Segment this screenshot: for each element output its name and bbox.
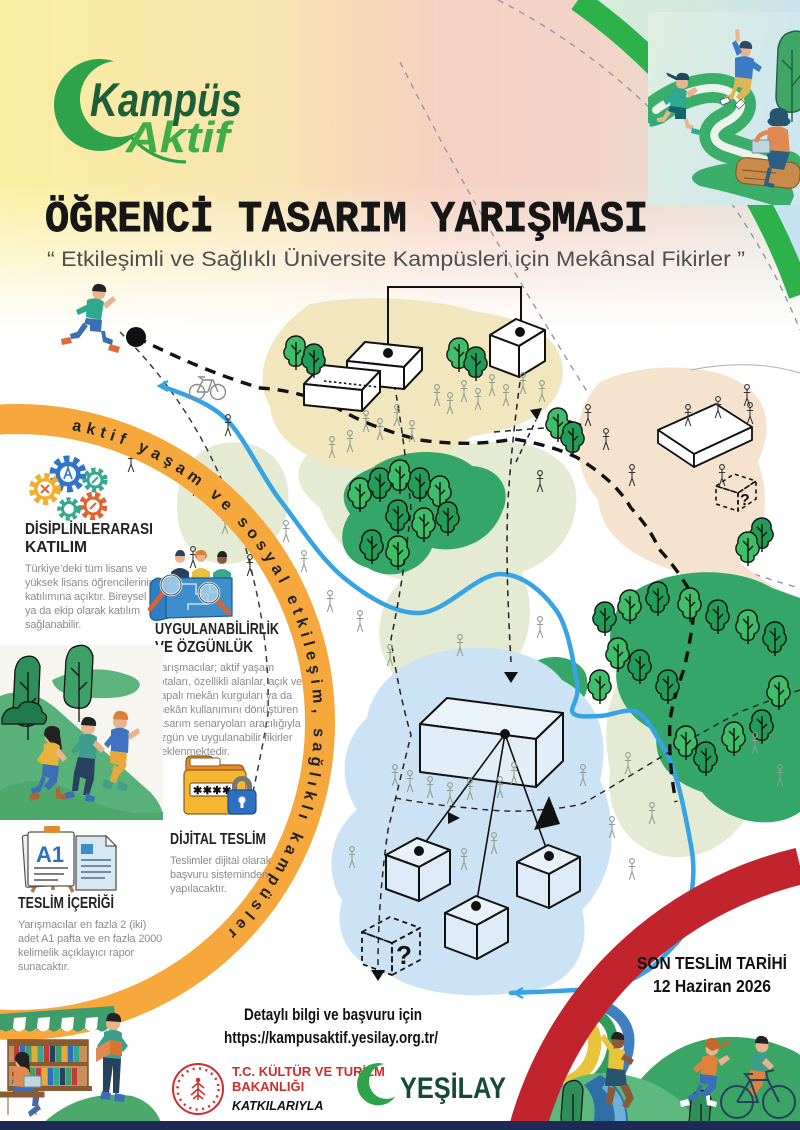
svg-text:Türkiye’deki tüm lisans ve: Türkiye’deki tüm lisans ve [25, 563, 147, 575]
svg-text:Yarışmacılar en fazla 2 (iki): Yarışmacılar en fazla 2 (iki) [18, 919, 146, 931]
svg-text:YEŞİLAY: YEŞİLAY [400, 1072, 506, 1105]
svg-text:başvuru sisteminden: başvuru sisteminden [170, 869, 268, 881]
svg-text:Teslimler dijital olarak: Teslimler dijital olarak [170, 855, 272, 867]
svg-text:rotaları, özellikli alanlar, a: rotaları, özellikli alanlar, açık ve [155, 676, 302, 688]
svg-text:?: ? [396, 940, 412, 970]
svg-text:mekân kullanımını dönüştüren: mekân kullanımını dönüştüren [155, 704, 298, 716]
svg-text:DİJİTAL TESLİM: DİJİTAL TESLİM [170, 831, 266, 848]
svg-text:Aktif: Aktif [125, 113, 235, 162]
svg-text:KATKILARIYLA: KATKILARIYLA [232, 1099, 323, 1113]
svg-text:katılımına açıktır. Bireysel: katılımına açıktır. Bireysel [25, 591, 146, 603]
svg-text:sunacaktır.: sunacaktır. [18, 961, 70, 973]
svg-text:kelimelik açıklayıcı rapor: kelimelik açıklayıcı rapor [18, 947, 134, 959]
svg-text:VE ÖZGÜNLÜK: VE ÖZGÜNLÜK [155, 639, 254, 656]
svg-text:özgün ve uygulanabilir fikirle: özgün ve uygulanabilir fikirler [155, 732, 293, 744]
svg-text:SON TESLİM TARİHİ: SON TESLİM TARİHİ [637, 953, 787, 973]
svg-text:12 Haziran 2026: 12 Haziran 2026 [653, 976, 771, 996]
svg-text:yüksek lisans öğrencilerinin: yüksek lisans öğrencilerinin [25, 577, 155, 589]
svg-text:BAKANLIĞI: BAKANLIĞI [232, 1079, 304, 1094]
svg-text:?: ? [740, 492, 750, 509]
svg-text:https://kampusaktif.yesilay.or: https://kampusaktif.yesilay.org.tr/ [224, 1029, 438, 1047]
svg-text:sağlanabilir.: sağlanabilir. [25, 619, 81, 631]
svg-text:yapılacaktır.: yapılacaktır. [170, 883, 227, 895]
svg-text:ya da ekip olarak katılım: ya da ekip olarak katılım [25, 605, 140, 617]
svg-text:“ Etkileşimli ve Sağlıklı Üniv: “ Etkileşimli ve Sağlıklı Üniversite Kam… [47, 247, 745, 271]
svg-text:KATILIM: KATILIM [25, 539, 87, 556]
svg-text:UYGULANABİLİRLİK: UYGULANABİLİRLİK [155, 621, 280, 638]
svg-text:kapalı mekân kurguları ya da: kapalı mekân kurguları ya da [155, 690, 293, 702]
svg-text:DİSİPLİNLERARASI: DİSİPLİNLERARASI [25, 521, 153, 538]
svg-text:ÖĞRENCİ TASARIM YARIŞMASI: ÖĞRENCİ TASARIM YARIŞMASI [45, 193, 648, 245]
svg-text:Detaylı bilgi ve başvuru için: Detaylı bilgi ve başvuru için [244, 1006, 422, 1024]
svg-text:adet A1 pafta ve en fazla 2000: adet A1 pafta ve en fazla 2000 [18, 933, 162, 945]
svg-text:TESLİM İÇERİĞİ: TESLİM İÇERİĞİ [18, 894, 114, 912]
svg-text:Yarışmacılar; aktif yaşam: Yarışmacılar; aktif yaşam [155, 662, 274, 674]
svg-text:tasarım senaryoları aracılığıy: tasarım senaryoları aracılığıyla [155, 718, 302, 730]
svg-text:A1: A1 [36, 842, 64, 867]
